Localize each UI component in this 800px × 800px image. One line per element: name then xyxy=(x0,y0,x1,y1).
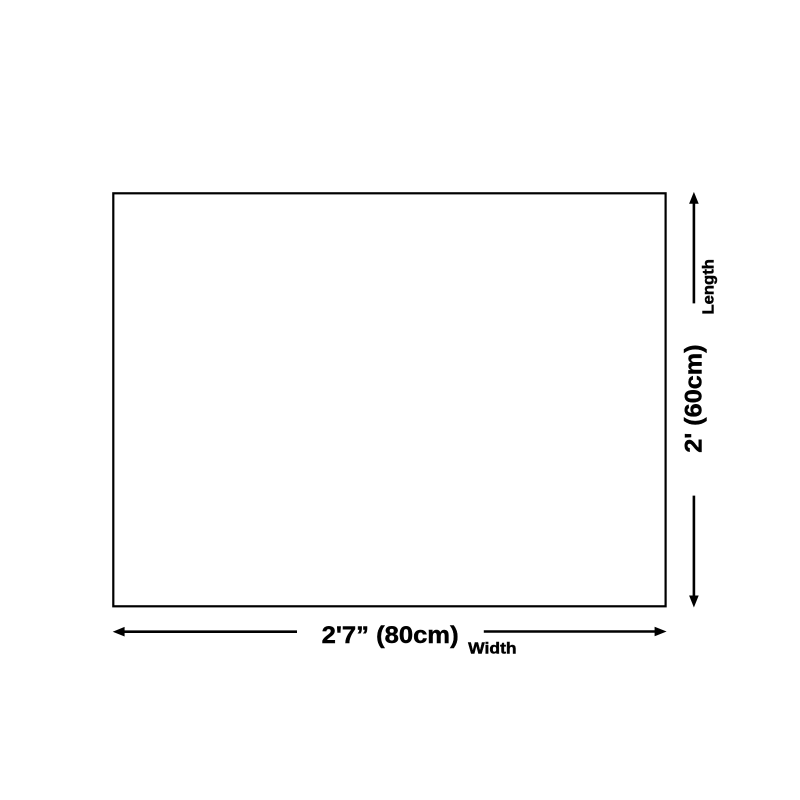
svg-text:2'7” (80cm): 2'7” (80cm) xyxy=(322,622,459,649)
svg-text:Length: Length xyxy=(700,259,717,314)
svg-text:2' (60cm): 2' (60cm) xyxy=(680,345,707,453)
svg-text:Width: Width xyxy=(468,641,516,658)
